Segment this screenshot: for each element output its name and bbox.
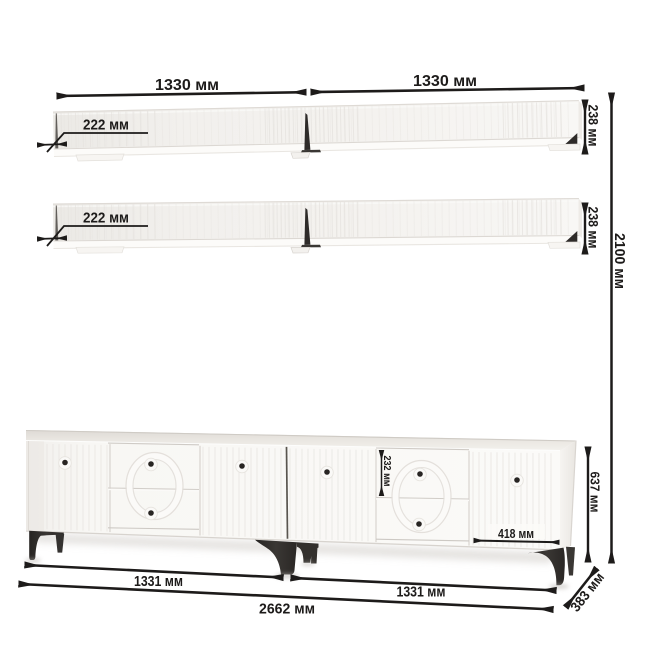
svg-text:222 мм: 222 мм [83,211,129,227]
svg-text:1331 мм: 1331 мм [397,584,446,601]
svg-text:418 мм: 418 мм [498,527,534,541]
svg-text:637 мм: 637 мм [588,472,603,513]
svg-text:1330 мм: 1330 мм [155,77,219,94]
svg-text:2662 мм: 2662 мм [259,601,315,618]
svg-text:2100 мм: 2100 мм [611,233,628,289]
svg-text:1330 мм: 1330 мм [413,73,477,90]
svg-text:222 мм: 222 мм [83,118,129,134]
svg-text:238 мм: 238 мм [586,207,601,249]
svg-text:232 мм: 232 мм [381,456,392,487]
svg-text:1331 мм: 1331 мм [134,573,183,590]
svg-text:238 мм: 238 мм [586,105,601,147]
